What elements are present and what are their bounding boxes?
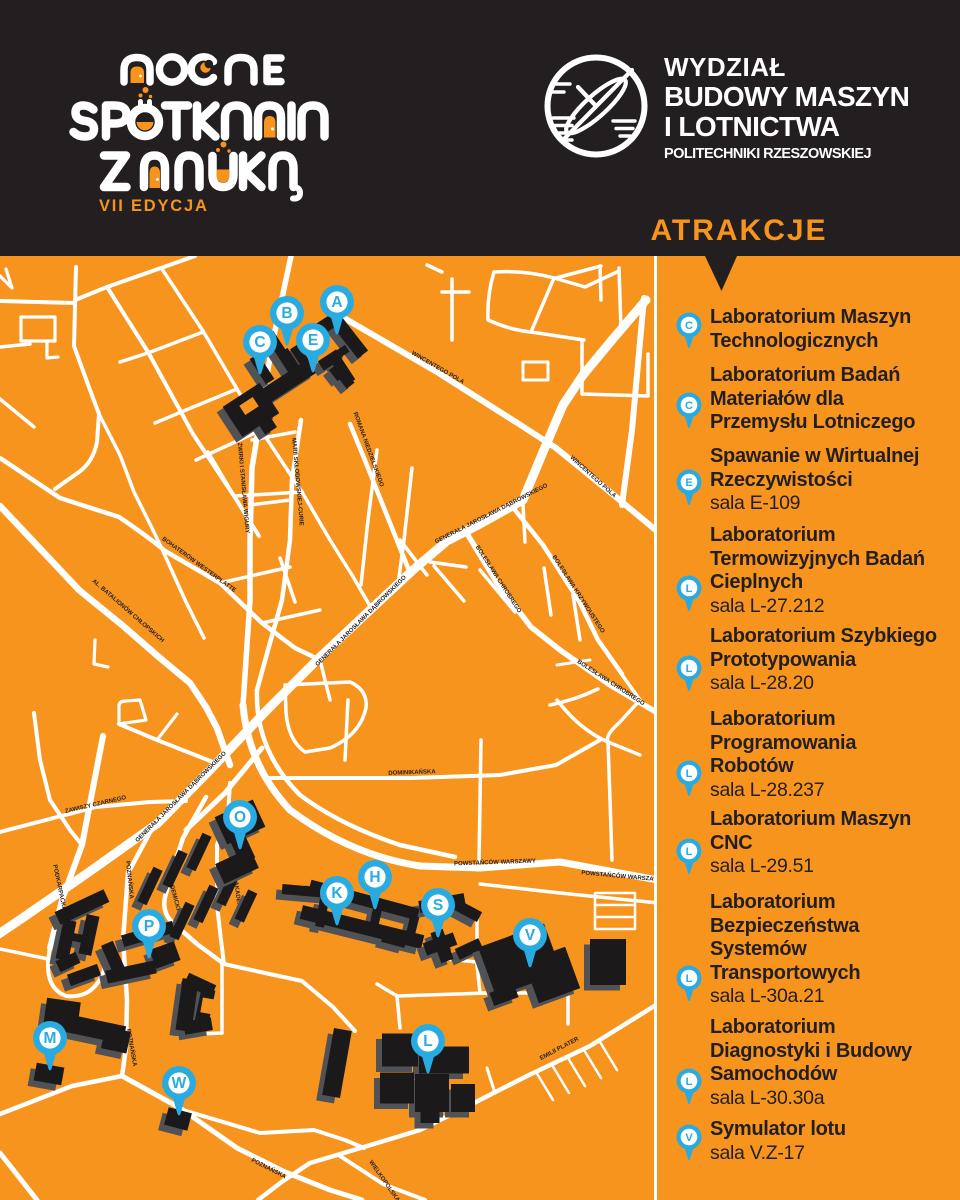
svg-text:A: A [331,294,342,311]
svg-text:S: S [433,897,443,914]
svg-text:ATRAKCJE: ATRAKCJE [650,214,827,247]
svg-text:L: L [686,1076,693,1088]
svg-text:BOHATERÓW WESTERPLATTE: BOHATERÓW WESTERPLATTE [161,535,238,594]
svg-text:L: L [686,973,693,985]
svg-text:E: E [308,332,318,349]
svg-text:O: O [234,809,246,826]
svg-text:I LOTNICTWA: I LOTNICTWA [664,111,840,142]
svg-text:V: V [685,1132,693,1144]
svg-text:L: L [686,663,693,675]
svg-text:WIELKOPOLSKA: WIELKOPOLSKA [367,1160,400,1200]
svg-text:BOLESŁAWA CHROBREGO: BOLESŁAWA CHROBREGO [576,659,646,707]
svg-text:L: L [686,846,693,858]
svg-text:WYDZIAŁ: WYDZIAŁ [664,52,786,82]
svg-text:B: B [281,305,292,322]
svg-text:L: L [686,768,693,780]
svg-text:L: L [423,1033,432,1050]
svg-text:BUDOWY MASZYN: BUDOWY MASZYN [664,81,909,112]
svg-text:DOMINIKAŃSKA: DOMINIKAŃSKA [388,767,436,777]
svg-text:M: M [44,1030,57,1047]
svg-text:WINCENTEGO POLA: WINCENTEGO POLA [410,351,465,386]
svg-text:P: P [144,918,154,935]
svg-text:ROMANA NIEDZIELSKIEGO: ROMANA NIEDZIELSKIEGO [352,411,385,488]
svg-text:W: W [172,1075,187,1092]
svg-text:C: C [685,400,693,412]
svg-text:GENERAŁA JAROSŁAWA DĄBROWSKIEG: GENERAŁA JAROSŁAWA DĄBROWSKIEGO [434,483,549,546]
svg-text:V: V [525,927,536,944]
svg-text:H: H [369,869,380,886]
svg-text:VII EDYCJA: VII EDYCJA [99,197,209,215]
svg-text:C: C [685,320,693,332]
svg-text:L: L [686,583,693,595]
svg-text:K: K [331,885,343,902]
svg-text:E: E [685,477,692,489]
svg-text:WINCENTEGO POLA: WINCENTEGO POLA [568,455,617,500]
svg-text:C: C [254,334,265,351]
svg-text:POLITECHNIKI RZESZOWSKIEJ: POLITECHNIKI RZESZOWSKIEJ [664,146,871,162]
svg-text:BOLESŁAWA CHROBREGO: BOLESŁAWA CHROBREGO [474,545,522,615]
